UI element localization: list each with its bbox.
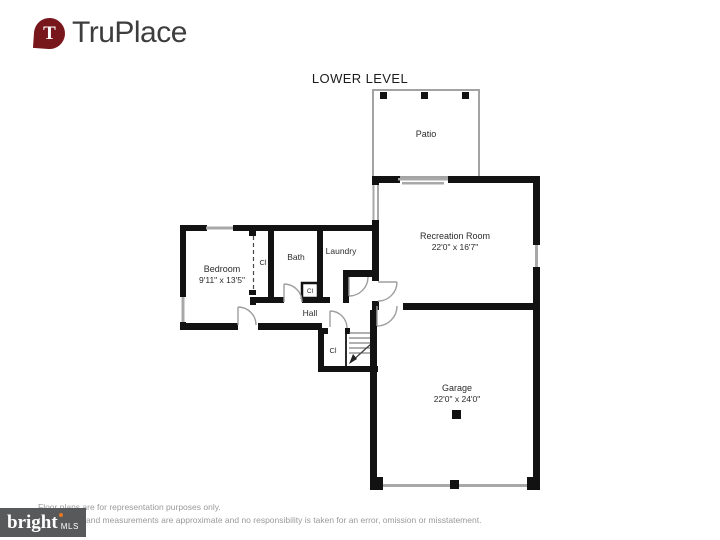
bath-label: Bath xyxy=(287,252,305,262)
laundry-label: Laundry xyxy=(326,246,357,256)
window xyxy=(377,185,379,220)
patio-post xyxy=(380,92,387,99)
garage-dims: 22'0" x 24'0" xyxy=(434,394,481,404)
window xyxy=(535,245,538,267)
bedroom-label: Bedroom xyxy=(204,264,241,274)
garage-column xyxy=(452,410,461,419)
sliding-door xyxy=(398,178,448,181)
sliding-door xyxy=(402,182,444,185)
patio-post xyxy=(421,92,428,99)
bedroom-closet-label: Cl xyxy=(259,258,266,267)
patio-post xyxy=(462,92,469,99)
bright-mls-logo: bright MLS xyxy=(0,508,86,537)
stair-block-walls xyxy=(318,328,378,372)
floorplan-drawing: Patio Recreation Room 22'0" x 16'7" Bedr… xyxy=(0,0,720,540)
bright-mls-wordmark: bright xyxy=(7,513,58,532)
window xyxy=(182,297,185,322)
bright-mls-spark-icon xyxy=(59,513,63,517)
window xyxy=(373,185,375,220)
stairs xyxy=(349,333,371,364)
hall-label: Hall xyxy=(303,308,318,318)
floorplan-page: T TruPlace LOWER LEVEL xyxy=(0,0,720,540)
patio-label: Patio xyxy=(416,129,437,139)
door-jamb xyxy=(249,290,256,295)
recreation-room-dims: 22'0" x 16'7" xyxy=(432,242,479,252)
garage-label: Garage xyxy=(442,383,472,393)
recreation-room-label: Recreation Room xyxy=(420,231,490,241)
door-jamb xyxy=(249,231,256,236)
disclaimer-line-2: and measurements are approximate and no … xyxy=(86,515,481,525)
bright-mls-suffix: MLS xyxy=(61,522,79,531)
stair-direction-arrow xyxy=(349,354,357,364)
bath-closet-label: Cl xyxy=(307,288,314,295)
hall-closet-label: Cl xyxy=(329,346,336,355)
bedroom-dims: 9'11" x 13'5" xyxy=(199,275,245,285)
window xyxy=(206,227,233,230)
garage-door-post xyxy=(450,480,459,489)
